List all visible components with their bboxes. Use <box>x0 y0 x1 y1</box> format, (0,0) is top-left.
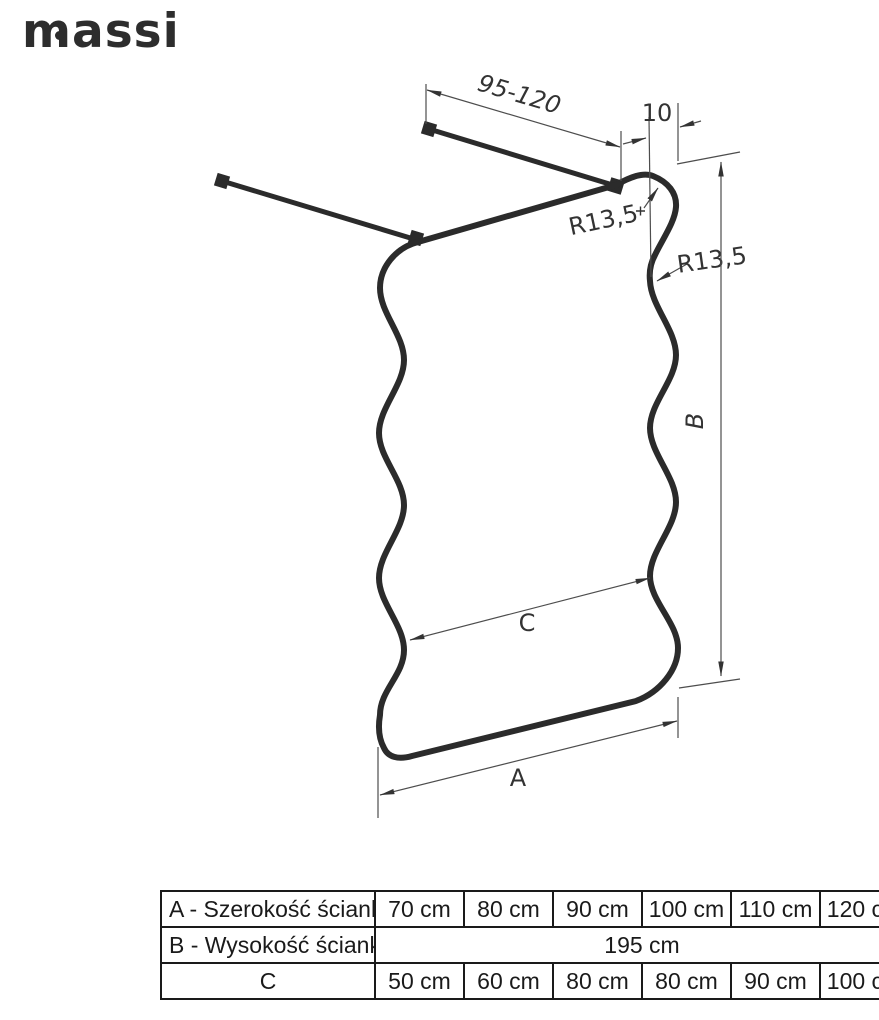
dimensions-table: A - Szerokość ścianki 70 cm 80 cm 90 cm … <box>160 890 879 1000</box>
cell-c-1: 50 cm <box>375 963 464 999</box>
shower-panel-diagram: 95-120 10 R13,5 R13,5 B C A <box>0 0 879 880</box>
leader-radius-corner <box>644 188 658 208</box>
cell-c-4: 80 cm <box>642 963 731 999</box>
cell-c-5: 90 cm <box>731 963 820 999</box>
table-row-width-a: A - Szerokość ścianki 70 cm 80 cm 90 cm … <box>161 891 879 927</box>
row-label-b: B - Wysokość ścianki <box>161 927 375 963</box>
cell-a-1: 70 cm <box>375 891 464 927</box>
dim-line-width <box>380 721 677 795</box>
cell-a-3: 90 cm <box>553 891 642 927</box>
support-bar-top <box>421 121 625 195</box>
dim-label-radius-corner: R13,5 <box>566 199 640 241</box>
table-row-height-b: B - Wysokość ścianki 195 cm <box>161 927 879 963</box>
dim-label-offset: 10 <box>642 99 673 127</box>
cell-a-2: 80 cm <box>464 891 553 927</box>
dim-tail-offset-right <box>680 121 701 127</box>
cell-b-merged: 195 cm <box>375 927 879 963</box>
row-label-c: C <box>161 963 375 999</box>
extension-lines <box>378 84 740 818</box>
cell-a-6: 120 cm <box>820 891 879 927</box>
dim-label-waist: C <box>519 609 536 637</box>
dim-label-bar-length: 95-120 <box>475 69 564 120</box>
dim-tail-offset-left <box>623 138 646 144</box>
support-bar-left <box>214 173 424 246</box>
row-label-a: A - Szerokość ścianki <box>161 891 375 927</box>
dim-label-height: B <box>681 413 709 429</box>
dim-label-width: A <box>510 764 527 792</box>
cell-c-3: 80 cm <box>553 963 642 999</box>
cell-c-6: 100 cm <box>820 963 879 999</box>
cell-a-4: 100 cm <box>642 891 731 927</box>
cell-c-2: 60 cm <box>464 963 553 999</box>
panel-outline <box>379 175 678 758</box>
cell-a-5: 110 cm <box>731 891 820 927</box>
dim-label-radius-wave: R13,5 <box>675 241 748 278</box>
table-row-waist-c: C 50 cm 60 cm 80 cm 80 cm 90 cm 100 cm <box>161 963 879 999</box>
